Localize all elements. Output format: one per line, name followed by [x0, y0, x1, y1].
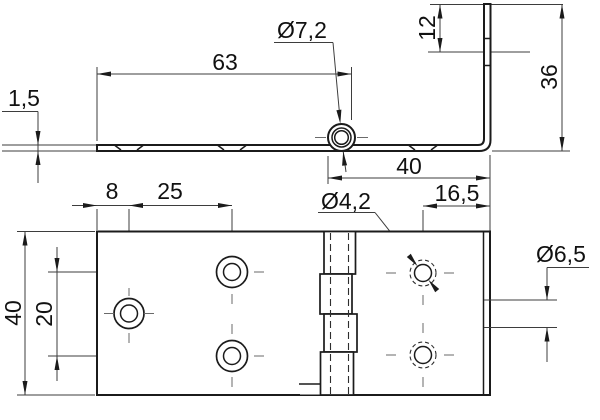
dim-edge-to-hole-col: 8	[106, 178, 119, 204]
dim-hole-row-spacing: 20	[31, 301, 57, 327]
dim20-arrow-bottom	[55, 356, 60, 370]
hole-mid-bottom-csk	[217, 341, 248, 372]
dim25-arrow-right	[218, 203, 232, 208]
dia65-lines	[484, 268, 589, 363]
dim8-arrow-left	[83, 203, 97, 208]
dim-right-leaf-length: 40	[396, 153, 422, 179]
knuckle-seg-1	[324, 232, 356, 275]
thickness-dim-line	[2, 112, 38, 184]
dim-flange-hole-dia: Ø6,5	[536, 241, 586, 267]
knuckle-seg-3	[324, 314, 357, 352]
dim40plan-arrow-top	[23, 232, 28, 246]
dim-flange-hole-offset: 12	[414, 15, 440, 41]
thickness-arrow-bottom	[36, 151, 41, 165]
dim36-arrow-bottom	[560, 137, 565, 151]
dim-flange-height: 36	[536, 64, 562, 90]
len63-arrow-right	[338, 72, 352, 77]
drawing-canvas: 1,5 63 Ø7,2 12 36 40	[0, 0, 600, 420]
dim40side-arrow-left	[328, 176, 342, 181]
dia65-arrow-top	[545, 286, 550, 300]
plan-view: 8 25 16,5 Ø4,2 Ø6,5 40 20	[0, 178, 589, 395]
knuckle-seg-2	[320, 274, 352, 314]
plate-outline	[97, 232, 490, 396]
dim-leaf-hole-dia: Ø4,2	[321, 188, 371, 214]
dia72-leader	[274, 43, 339, 111]
thickness-extension-lines	[2, 145, 96, 151]
dim-left-leaf-length: 63	[212, 49, 238, 75]
dim40plan-arrow-bottom	[23, 381, 28, 395]
dim-hinge-width: 40	[0, 300, 26, 326]
dim25-arrow-left	[129, 203, 143, 208]
slot-mask	[300, 384, 321, 395]
length63-dim-lines	[97, 67, 352, 141]
hinge-drawing: 1,5 63 Ø7,2 12 36 40	[0, 0, 600, 420]
dia65-arrow-bottom	[545, 328, 550, 342]
thickness-arrow-top	[36, 131, 41, 145]
dim-knuckle-hole-dia: Ø7,2	[277, 17, 327, 43]
dim12-lines	[428, 5, 563, 53]
hole-mid-top-csk	[217, 257, 248, 288]
dim36-arrow-top	[560, 5, 565, 19]
dim-plate-thickness: 1,5	[8, 85, 40, 111]
dim20-arrow-top	[55, 258, 60, 272]
dim-hole-to-edge: 16,5	[435, 180, 480, 206]
dim-hole-col-spacing: 25	[157, 178, 183, 204]
dia72-arrow-top	[336, 110, 341, 124]
dia72-arrow-bottom	[342, 152, 347, 166]
len63-arrow-left	[97, 72, 111, 77]
hole-left-csk	[114, 299, 144, 329]
side-view: 1,5 63 Ø7,2 12 36 40	[2, 4, 570, 231]
